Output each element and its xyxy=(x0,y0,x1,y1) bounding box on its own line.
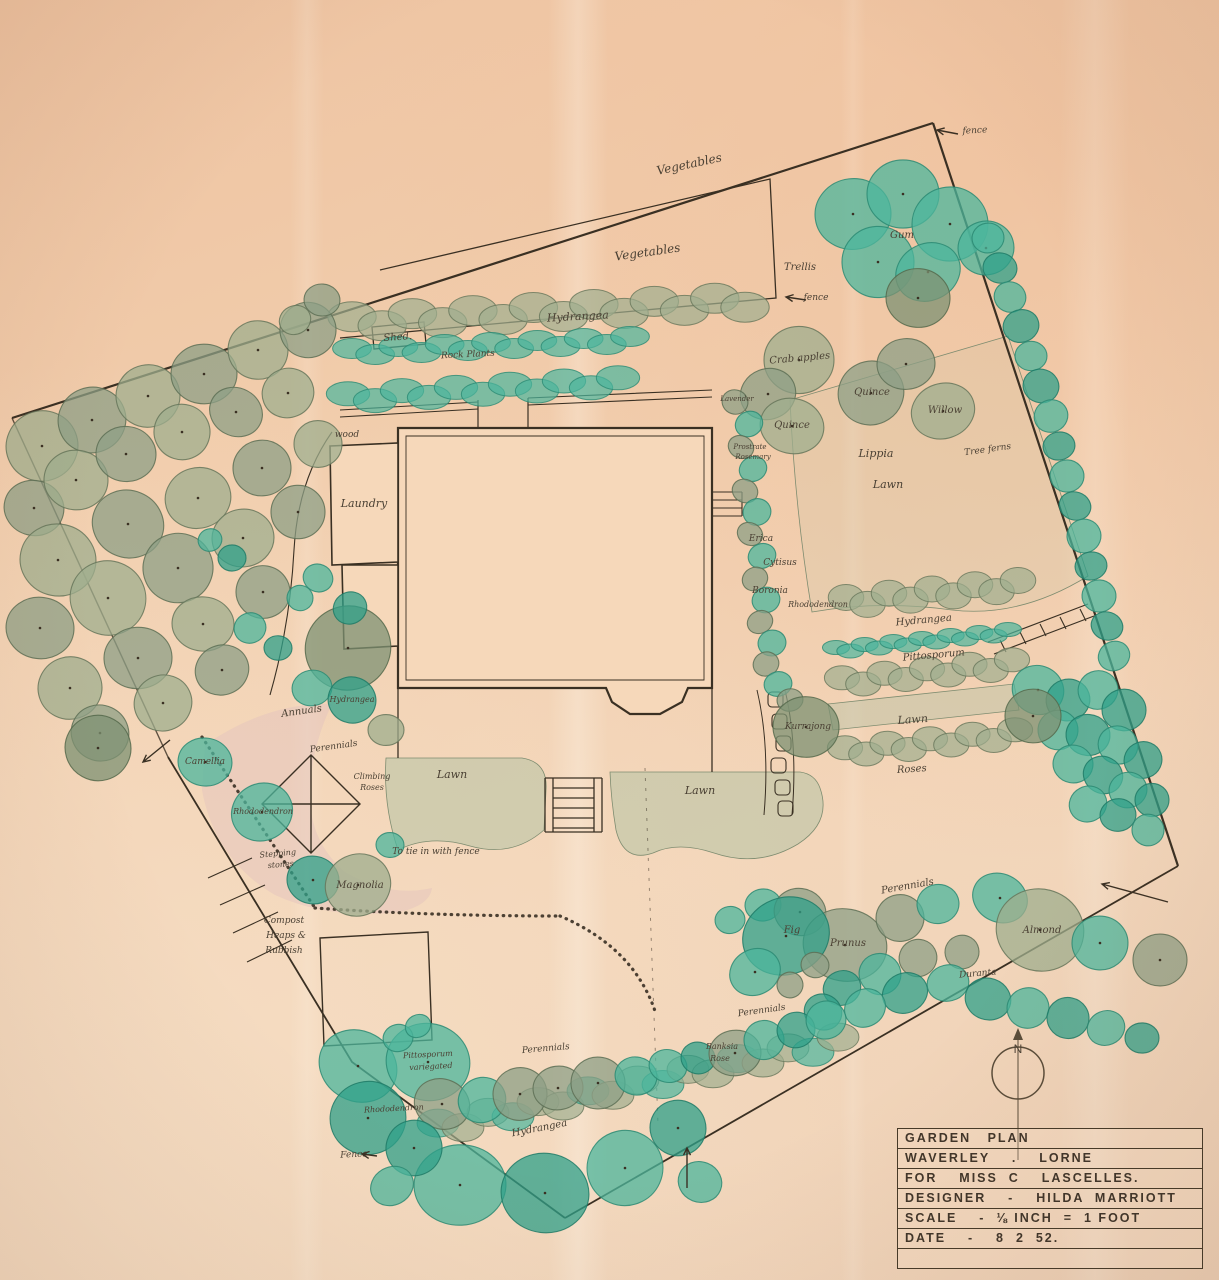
tree-center-dot xyxy=(181,431,184,434)
ink-line xyxy=(560,916,656,1014)
tree-center-dot xyxy=(917,297,920,300)
tree-center-dot xyxy=(177,567,180,570)
tree-center-dot xyxy=(235,411,238,414)
tree-center-dot xyxy=(544,1192,547,1195)
tree-center-dot xyxy=(257,349,260,352)
plant-label: Vegetables xyxy=(614,240,682,263)
compass-arrowhead xyxy=(1013,1028,1023,1040)
tree-center-dot xyxy=(261,467,264,470)
tree xyxy=(1125,1023,1159,1053)
garden-plan-photo: { "title_block": { "rows": [ "GARDEN PLA… xyxy=(0,0,1219,1280)
plan-svg: VegetablesVegetablesTrellisfencefenceShe… xyxy=(0,0,1219,1280)
plant-label: Fig xyxy=(783,925,801,936)
tree xyxy=(1081,579,1117,613)
tree-center-dot xyxy=(125,453,128,456)
plant-label: Lawn xyxy=(872,478,903,491)
plant-label: Prunus xyxy=(829,938,866,949)
tree-center-dot xyxy=(242,537,245,540)
tree-center-dot xyxy=(57,559,60,562)
plant-label: Gum xyxy=(890,230,914,241)
hedge xyxy=(611,327,650,347)
tree-center-dot xyxy=(41,445,44,448)
tree xyxy=(1093,636,1135,676)
tree xyxy=(1043,994,1093,1043)
tree-center-dot xyxy=(203,373,206,376)
plant-label: Almond xyxy=(1022,925,1062,936)
plant-label: Rubbish xyxy=(264,946,302,956)
plant-label: Quince xyxy=(774,420,810,431)
plant-label: Hydrangea xyxy=(894,613,952,629)
plant-label: Compost xyxy=(264,916,305,926)
tree-center-dot xyxy=(287,392,290,395)
plant-label: Quince xyxy=(854,387,890,398)
tree-center-dot xyxy=(902,193,905,196)
tree-center-dot xyxy=(557,1087,560,1090)
tree-center-dot xyxy=(107,597,110,600)
tree-center-dot xyxy=(597,1082,600,1085)
plant-label: fence xyxy=(961,125,987,136)
tree-center-dot xyxy=(905,363,908,366)
plant-label: Roses xyxy=(896,763,927,776)
title-block-row-blank xyxy=(898,1249,1202,1268)
tree-center-dot xyxy=(312,879,315,882)
plant-label: Trellis xyxy=(784,262,816,273)
fence-arrow xyxy=(1102,883,1168,902)
plant-label: fence xyxy=(803,293,829,303)
plant-label: Camellia xyxy=(185,757,225,767)
plant-label: Rhododendron xyxy=(787,600,848,609)
plant-label: Prostrate xyxy=(732,443,766,451)
title-block-row-date: DATE - 8 2 52. xyxy=(898,1229,1202,1249)
tree-center-dot xyxy=(767,393,770,396)
tree xyxy=(1015,341,1047,370)
tree xyxy=(1082,1005,1130,1051)
plant-label: Rose xyxy=(709,1054,730,1063)
plant-label: Rosemary xyxy=(734,453,771,461)
tree-center-dot xyxy=(75,479,78,482)
tree-center-dot xyxy=(357,1065,360,1068)
plant-label: Lawn xyxy=(896,712,928,727)
stepping-stone xyxy=(771,758,786,773)
plant-label: Climbing xyxy=(354,772,391,781)
title-block-row-title: GARDEN PLAN xyxy=(898,1129,1202,1149)
tree-center-dot xyxy=(754,971,757,974)
hedge xyxy=(596,366,639,390)
tree-center-dot xyxy=(147,395,150,398)
plant-label: Cytisus xyxy=(763,558,797,568)
plant-label: Lippia xyxy=(858,447,894,460)
tree xyxy=(1002,983,1053,1033)
tree-center-dot xyxy=(441,1103,444,1106)
title-block-row-site: WAVERLEY . LORNE xyxy=(898,1149,1202,1169)
tree-center-dot xyxy=(1159,959,1162,962)
tree-center-dot xyxy=(367,1117,370,1120)
plant-label: Vegetables xyxy=(655,150,723,177)
tree-center-dot xyxy=(413,1147,416,1150)
tree-center-dot xyxy=(97,747,100,750)
plant-label: Shed. xyxy=(383,331,412,344)
plant-label: Erica xyxy=(748,534,773,544)
tree xyxy=(713,904,747,935)
tree-center-dot xyxy=(69,687,72,690)
title-block-row-client: FOR MISS C LASCELLES. xyxy=(898,1169,1202,1189)
title-block-row-scale: SCALE - ⅛ INCH = 1 FOOT xyxy=(898,1209,1202,1229)
plant-label: Lawn xyxy=(436,768,467,781)
plant-label: Lavender xyxy=(719,395,754,403)
plant-label: Roses xyxy=(359,783,384,792)
plant-label: To tie in with fence xyxy=(392,847,479,857)
tree-center-dot xyxy=(677,1127,680,1130)
plant-label: Willow xyxy=(928,405,963,416)
tree-center-dot xyxy=(197,497,200,500)
tree-center-dot xyxy=(127,523,130,526)
tree-center-dot xyxy=(347,647,350,650)
compass-north-label: N xyxy=(1014,1042,1023,1056)
plant-label: Boronia xyxy=(751,586,788,596)
tree-center-dot xyxy=(877,261,880,264)
tree-center-dot xyxy=(624,1167,627,1170)
tree-center-dot xyxy=(1032,715,1035,718)
tree-center-dot xyxy=(221,669,224,672)
tree xyxy=(1101,688,1146,731)
tree xyxy=(263,635,292,661)
hedge xyxy=(1000,567,1036,593)
plant-label: Heaps & xyxy=(265,931,306,941)
tree xyxy=(218,545,246,572)
tree-center-dot xyxy=(262,591,265,594)
tree-center-dot xyxy=(297,511,300,514)
tree-center-dot xyxy=(1099,942,1102,945)
title-block: GARDEN PLAN WAVERLEY . LORNE FOR MISS C … xyxy=(897,1128,1203,1269)
tree xyxy=(672,1155,728,1209)
plant-label: Rhododendron xyxy=(232,807,293,816)
plant-label: Perennials xyxy=(736,1003,786,1020)
tree-center-dot xyxy=(999,897,1002,900)
tree-center-dot xyxy=(202,623,205,626)
plant-label: wood xyxy=(335,430,360,440)
house-main xyxy=(398,428,712,714)
plant-label: Lawn xyxy=(684,784,715,797)
tree-center-dot xyxy=(162,702,165,705)
tree-center-dot xyxy=(39,627,42,630)
tree-center-dot xyxy=(852,213,855,216)
ink-line xyxy=(545,778,602,832)
hedge xyxy=(721,292,769,322)
tree-center-dot xyxy=(519,1093,522,1096)
hedge xyxy=(994,623,1021,637)
tree-center-dot xyxy=(734,1052,737,1055)
plant-label: Kurrajong xyxy=(784,722,831,732)
title-block-row-designer: DESIGNER - HILDA MARRIOTT xyxy=(898,1189,1202,1209)
plant-label: Laundry xyxy=(340,497,388,510)
tree-center-dot xyxy=(137,657,140,660)
fence-arrow xyxy=(937,128,958,135)
plant-label: Perennials xyxy=(521,1042,571,1056)
tree xyxy=(368,715,404,746)
tree-center-dot xyxy=(33,507,36,510)
tree xyxy=(1087,608,1126,645)
plant-label: Banksia xyxy=(705,1042,738,1051)
plant-label: Rhododendron xyxy=(363,1102,424,1114)
tree-center-dot xyxy=(91,419,94,422)
plant-label: Hydrangea xyxy=(329,695,375,704)
tree-center-dot xyxy=(949,223,952,226)
plant-label: Rock Plants xyxy=(440,349,496,362)
tree-center-dot xyxy=(459,1184,462,1187)
plant-label: Hydrangea xyxy=(546,308,609,324)
plant-label: Magnolia xyxy=(335,880,383,891)
